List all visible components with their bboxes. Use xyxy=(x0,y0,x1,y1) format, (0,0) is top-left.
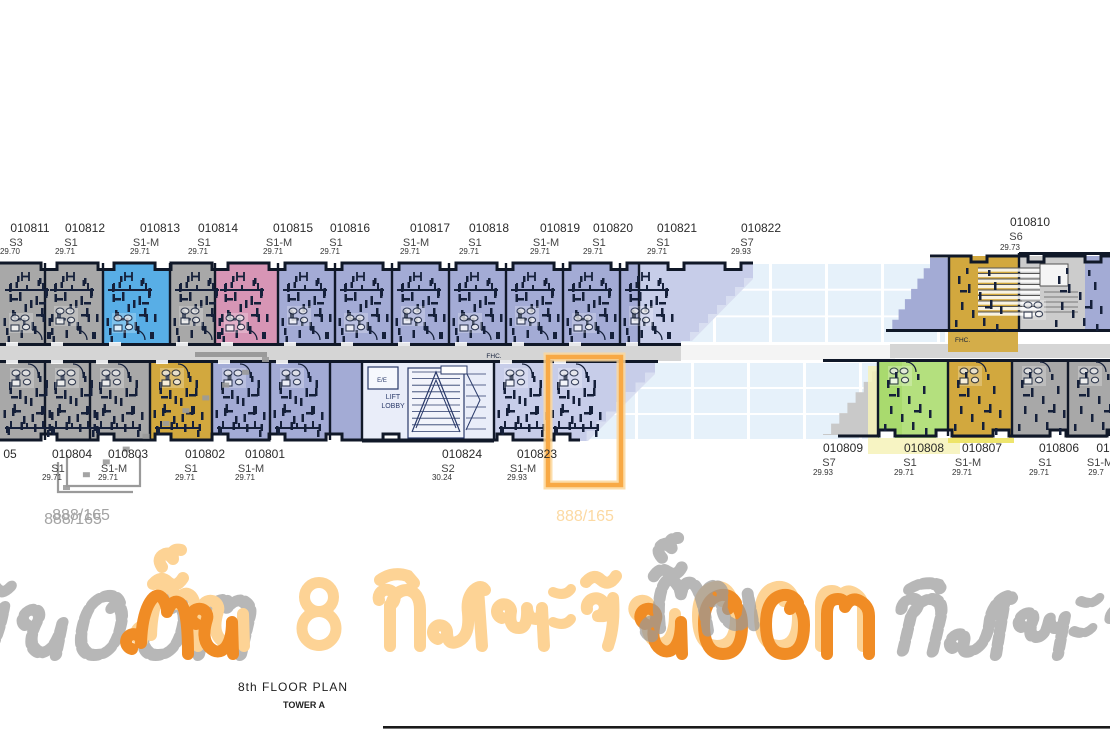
svg-text:010808: 010808 xyxy=(904,441,944,455)
svg-text:29.73: 29.73 xyxy=(1000,243,1021,252)
svg-text:010804: 010804 xyxy=(52,447,92,461)
svg-text:29.71: 29.71 xyxy=(952,468,973,477)
svg-text:29.71: 29.71 xyxy=(42,473,63,482)
svg-text:30.24: 30.24 xyxy=(432,473,453,482)
svg-text:010819: 010819 xyxy=(540,221,580,235)
svg-text:8th FLOOR PLAN: 8th FLOOR PLAN xyxy=(238,680,348,694)
svg-text:29.71: 29.71 xyxy=(400,247,421,256)
svg-text:LIFT: LIFT xyxy=(386,394,401,401)
svg-text:TOWER A: TOWER A xyxy=(283,700,325,710)
svg-text:29.71: 29.71 xyxy=(320,247,341,256)
svg-text:010812: 010812 xyxy=(65,221,105,235)
svg-text:29.71: 29.71 xyxy=(583,247,604,256)
svg-text:010820: 010820 xyxy=(593,221,633,235)
svg-text:29.93: 29.93 xyxy=(813,468,834,477)
svg-text:29.93: 29.93 xyxy=(731,247,752,256)
svg-text:29.71: 29.71 xyxy=(647,247,668,256)
svg-text:010818: 010818 xyxy=(469,221,509,235)
svg-text:010806: 010806 xyxy=(1039,441,1079,455)
svg-text:010802: 010802 xyxy=(185,447,225,461)
svg-text:010821: 010821 xyxy=(657,221,697,235)
svg-text:LOBBY: LOBBY xyxy=(381,403,405,410)
svg-text:05: 05 xyxy=(3,447,17,461)
svg-text:E/E: E/E xyxy=(377,378,387,384)
svg-text:FHC.: FHC. xyxy=(486,353,501,360)
svg-text:010822: 010822 xyxy=(741,221,781,235)
svg-text:FHC.: FHC. xyxy=(955,337,970,344)
svg-text:29.71: 29.71 xyxy=(894,468,915,477)
svg-text:S6: S6 xyxy=(1009,231,1022,243)
svg-text:010803: 010803 xyxy=(108,447,148,461)
svg-text:010813: 010813 xyxy=(140,221,180,235)
svg-text:29.71: 29.71 xyxy=(1029,468,1050,477)
svg-text:010811: 010811 xyxy=(10,221,49,235)
svg-text:29.71: 29.71 xyxy=(459,247,480,256)
svg-text:29.70: 29.70 xyxy=(0,247,21,256)
svg-text:010809: 010809 xyxy=(823,441,863,455)
svg-text:888/165: 888/165 xyxy=(44,511,102,528)
svg-text:29.71: 29.71 xyxy=(235,473,256,482)
svg-text:29.71: 29.71 xyxy=(98,473,119,482)
svg-text:29.71: 29.71 xyxy=(263,247,284,256)
svg-text:010824: 010824 xyxy=(442,447,482,461)
svg-text:010823: 010823 xyxy=(517,447,557,461)
svg-text:29.71: 29.71 xyxy=(55,247,76,256)
svg-text:29.93: 29.93 xyxy=(507,473,528,482)
svg-text:010810: 010810 xyxy=(1010,215,1050,229)
svg-text:29.71: 29.71 xyxy=(530,247,551,256)
svg-text:010815: 010815 xyxy=(273,221,313,235)
svg-text:010814: 010814 xyxy=(198,221,238,235)
svg-text:010807: 010807 xyxy=(962,441,1002,455)
svg-text:29.71: 29.71 xyxy=(188,247,209,256)
svg-text:010816: 010816 xyxy=(330,221,370,235)
svg-text:010817: 010817 xyxy=(410,221,450,235)
svg-text:888/165: 888/165 xyxy=(556,508,614,525)
svg-text:29.7: 29.7 xyxy=(1088,468,1104,477)
svg-text:29.71: 29.71 xyxy=(175,473,196,482)
svg-text:010801: 010801 xyxy=(245,447,285,461)
svg-text:29.71: 29.71 xyxy=(130,247,151,256)
svg-text:01: 01 xyxy=(1096,441,1110,455)
